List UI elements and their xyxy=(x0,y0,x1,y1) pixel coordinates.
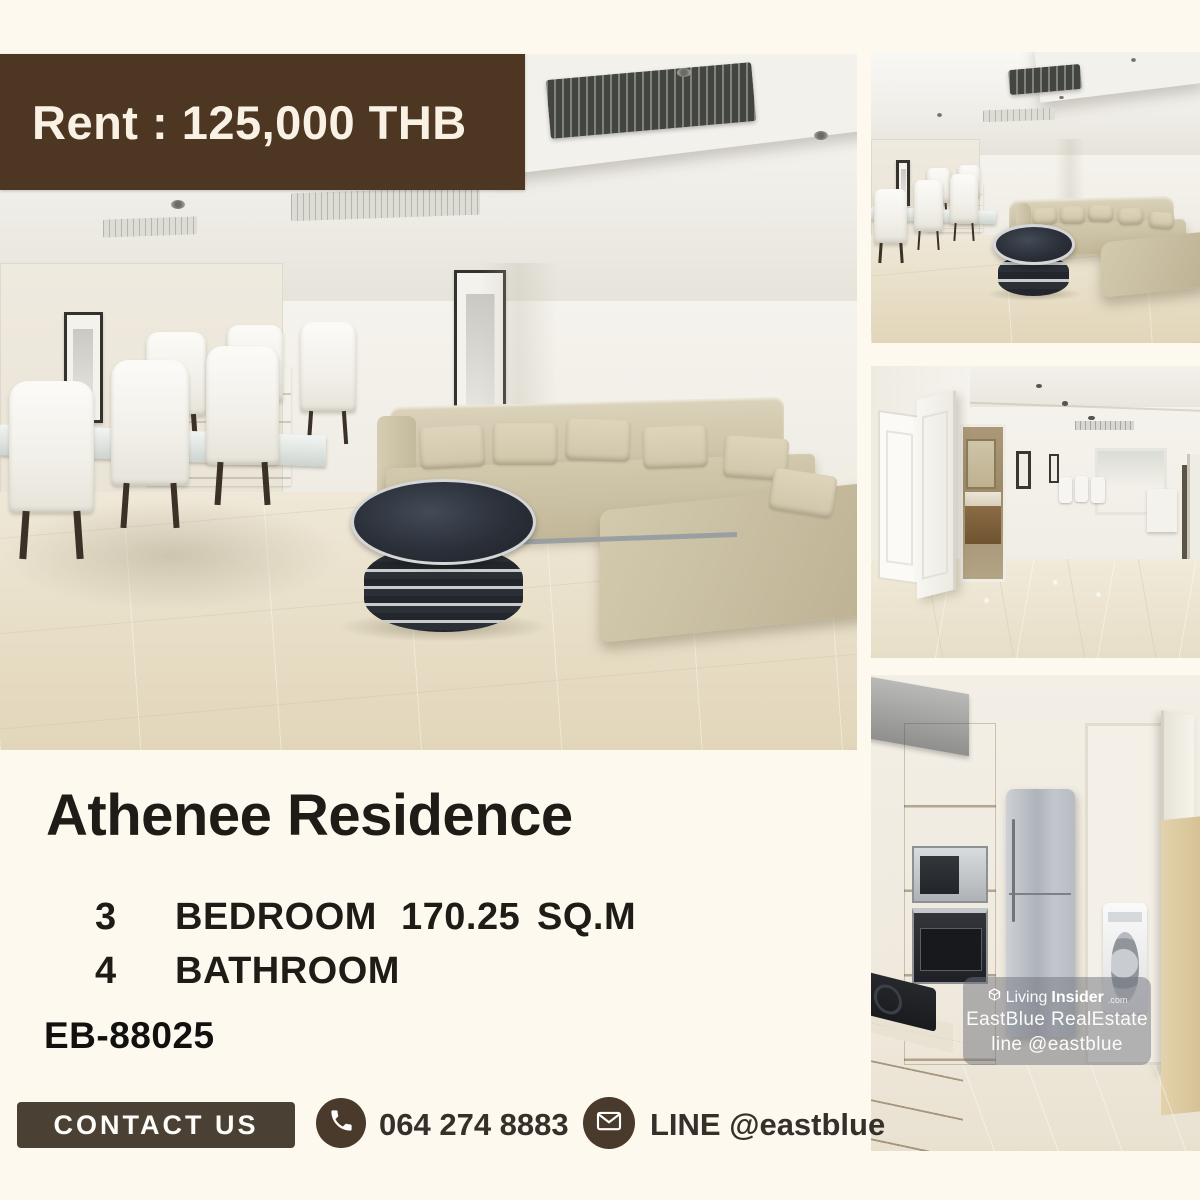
spotlight xyxy=(677,68,691,77)
cushion xyxy=(1060,206,1085,223)
watermark-brand-tld: .com xyxy=(1108,996,1128,1006)
coffee-table-top xyxy=(993,224,1075,265)
wall-frame xyxy=(1016,451,1031,489)
cushion xyxy=(1148,211,1174,230)
dining-chair xyxy=(206,346,279,464)
dining-chair xyxy=(9,381,95,513)
watermark-brand-suffix: Insider xyxy=(1051,990,1103,1006)
line-id[interactable]: LINE @eastblue xyxy=(650,1102,885,1148)
living-room-scene xyxy=(871,52,1200,343)
kitchen-scene xyxy=(871,675,1200,1151)
spotlight xyxy=(1062,401,1069,406)
console-table xyxy=(1147,489,1177,533)
phone-badge[interactable] xyxy=(316,1098,366,1148)
cushion xyxy=(419,425,485,470)
microwave xyxy=(912,846,988,903)
sofa-chaise xyxy=(1101,231,1200,298)
coffee-table xyxy=(993,224,1075,303)
dining-chair xyxy=(300,322,356,412)
bathroom-label: BATHROOM xyxy=(175,950,400,993)
dining-chair xyxy=(1059,477,1072,503)
property-title: Athenee Residence xyxy=(46,782,573,849)
spotlight xyxy=(1088,416,1095,421)
floor-shadow xyxy=(0,499,343,610)
watermark-line-id: line @eastblue xyxy=(991,1034,1123,1056)
cushion xyxy=(493,423,557,465)
ceiling-vent xyxy=(1075,421,1134,430)
cushion xyxy=(1117,207,1142,225)
livinginsider-cube-icon xyxy=(987,987,1002,1006)
line-badge[interactable] xyxy=(583,1097,635,1149)
open-door xyxy=(917,390,956,598)
bathroom-mirror xyxy=(966,439,996,489)
photo-hallway xyxy=(871,366,1200,658)
envelope-icon xyxy=(594,1106,624,1141)
phone-icon xyxy=(328,1107,355,1139)
rent-banner-label: Rent : 125,000 THB xyxy=(32,95,467,150)
ceiling-vent xyxy=(103,216,197,237)
dining-chair xyxy=(111,360,188,485)
wall-frame xyxy=(1049,454,1059,483)
bathroom-vanity xyxy=(965,492,1001,507)
spotlight xyxy=(937,113,942,117)
dining-chair xyxy=(1075,476,1088,502)
coffee-table-top xyxy=(351,479,535,566)
photo-kitchen: LivingInsider.com EastBlue RealEstate li… xyxy=(871,675,1200,1151)
dining-chair xyxy=(874,189,907,244)
spotlight xyxy=(814,131,828,140)
area-unit: SQ.M xyxy=(537,896,636,939)
area-value: 170.25 xyxy=(401,896,520,939)
watermark-brand-prefix: Living xyxy=(1006,990,1048,1006)
bedroom-label: BEDROOM xyxy=(175,896,377,939)
listing-code: EB-88025 xyxy=(44,1015,215,1057)
dining-chair xyxy=(914,180,944,232)
rent-banner: Rent : 125,000 THB xyxy=(0,54,525,190)
bedroom-count: 3 xyxy=(95,896,117,939)
dining-chair xyxy=(1091,477,1104,503)
cushion xyxy=(1088,204,1113,222)
floor-highlight xyxy=(1095,591,1102,598)
cushion xyxy=(642,425,708,469)
floor xyxy=(930,1065,1200,1151)
vanity-cabinet xyxy=(965,506,1001,544)
cushion xyxy=(565,418,631,462)
contact-us-button[interactable]: CONTACT US xyxy=(17,1102,295,1148)
bathroom-count: 4 xyxy=(95,950,117,993)
rental-flyer: Rent : 125,000 THB xyxy=(0,0,1200,1200)
oven xyxy=(912,908,988,984)
watermark-brand: LivingInsider.com xyxy=(987,987,1128,1006)
dining-chair xyxy=(950,174,978,223)
watermark-agency: EastBlue RealEstate xyxy=(966,1009,1148,1031)
watermark: LivingInsider.com EastBlue RealEstate li… xyxy=(963,977,1151,1065)
phone-number[interactable]: 064 274 8883 xyxy=(379,1102,569,1148)
hallway-scene xyxy=(871,366,1200,658)
photo-living-room-wide xyxy=(871,52,1200,343)
floor-highlight xyxy=(983,597,990,604)
door xyxy=(878,410,921,585)
coffee-table xyxy=(351,479,535,646)
spotlight xyxy=(1131,58,1136,62)
ceiling-vent xyxy=(983,107,1055,121)
